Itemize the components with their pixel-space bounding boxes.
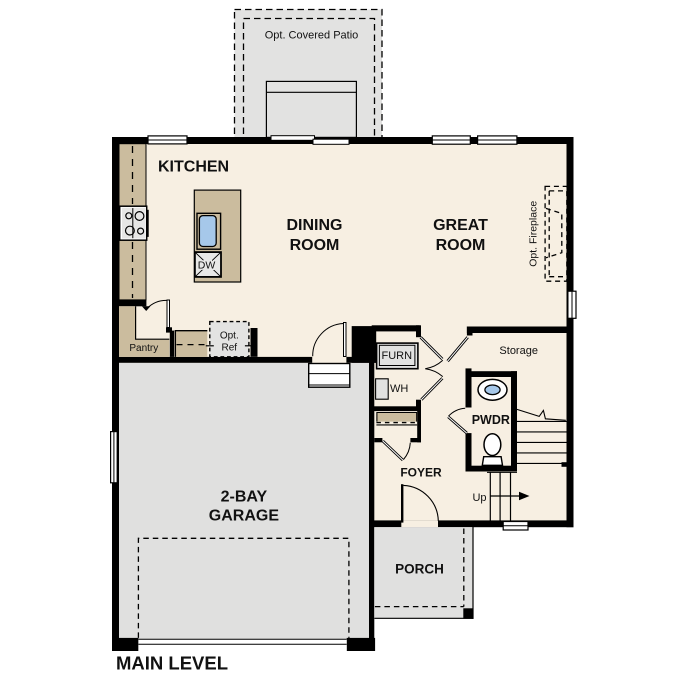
svg-text:2-BAY: 2-BAY: [221, 489, 268, 506]
svg-text:MAIN LEVEL: MAIN LEVEL: [116, 653, 228, 674]
svg-text:DW: DW: [198, 259, 216, 271]
svg-text:WH: WH: [390, 383, 408, 395]
svg-text:PWDR: PWDR: [472, 413, 510, 427]
svg-text:Storage: Storage: [499, 345, 538, 357]
svg-text:GREAT: GREAT: [433, 217, 488, 234]
svg-text:FOYER: FOYER: [400, 465, 442, 479]
svg-text:Opt. Covered Patio: Opt. Covered Patio: [265, 29, 359, 41]
svg-text:Up: Up: [472, 492, 486, 504]
svg-text:GARAGE: GARAGE: [209, 508, 280, 525]
svg-text:KITCHEN: KITCHEN: [158, 159, 229, 176]
svg-text:PORCH: PORCH: [395, 562, 444, 577]
svg-text:Ref: Ref: [222, 343, 238, 354]
svg-text:ROOM: ROOM: [436, 237, 486, 254]
svg-text:Opt. Fireplace: Opt. Fireplace: [528, 201, 540, 267]
svg-text:Opt.: Opt.: [220, 331, 239, 342]
svg-text:DINING: DINING: [287, 217, 343, 234]
svg-text:ROOM: ROOM: [290, 237, 340, 254]
svg-text:Pantry: Pantry: [129, 343, 158, 354]
svg-text:FURN: FURN: [382, 350, 413, 362]
